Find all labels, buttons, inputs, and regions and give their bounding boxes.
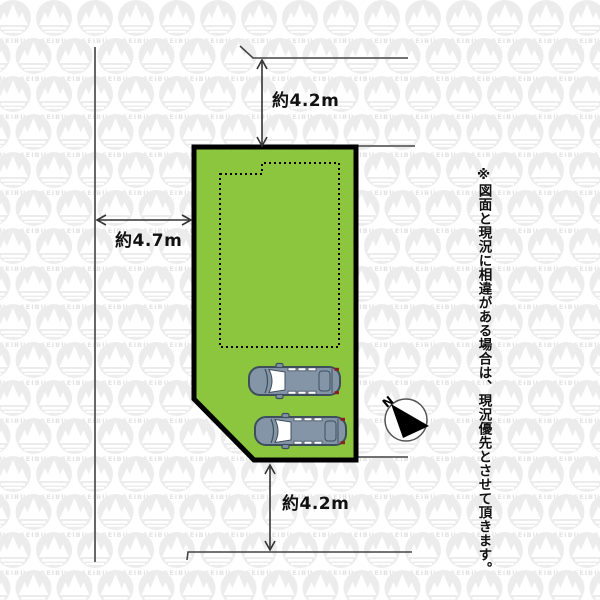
site-plan-page: SEIBU — [0, 0, 600, 600]
disclaimer-note: ※図面と現況に相違がある場合は、現況優先とさせて頂きます。 — [476, 167, 490, 577]
lot-polygon — [194, 147, 356, 460]
dimension-arrow-bottom — [265, 465, 275, 550]
boundary-bottom-line — [187, 552, 412, 560]
north-compass: N — [380, 393, 429, 441]
boundary-top-line — [240, 46, 408, 58]
dimension-label-bottom: 約4.2m — [282, 489, 349, 514]
dimension-arrow-left — [97, 215, 191, 225]
car-1 — [249, 364, 340, 399]
dimension-arrow-top — [257, 60, 267, 146]
dimension-label-top: 約4.2m — [272, 86, 339, 111]
car-2 — [255, 414, 346, 449]
dimension-label-left: 約4.7m — [115, 226, 182, 251]
